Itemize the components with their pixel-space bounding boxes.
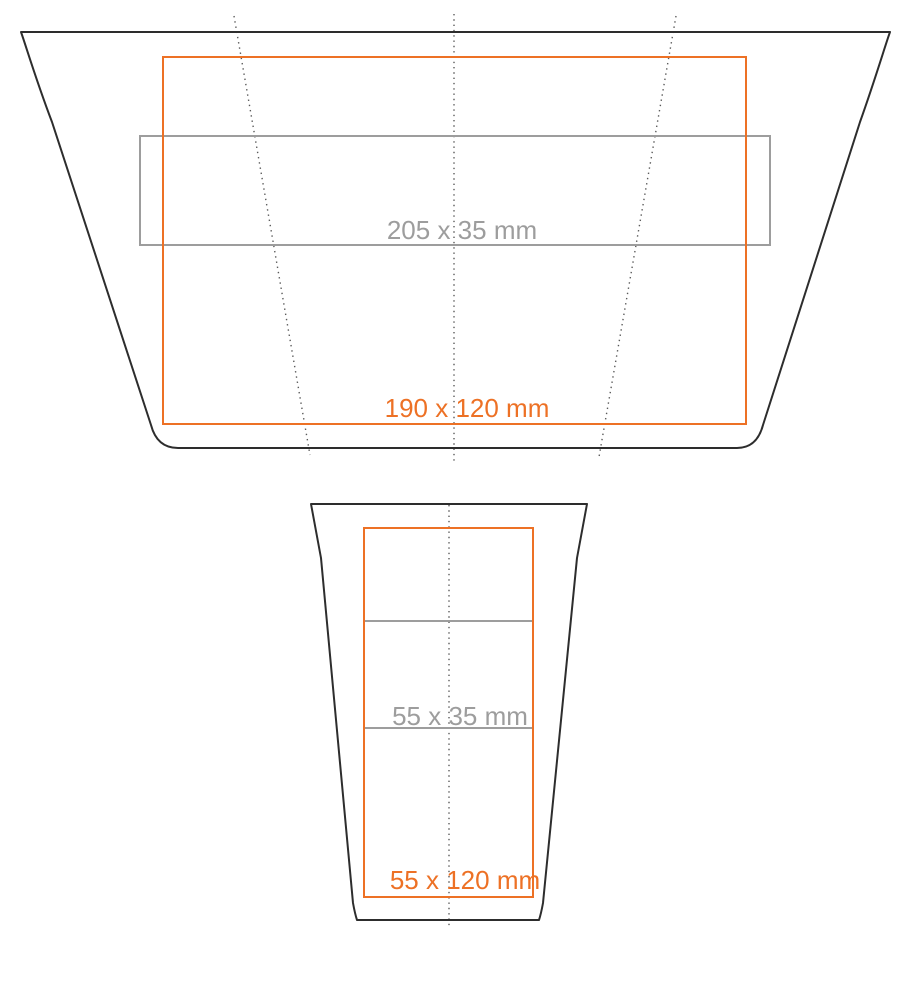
front-view: 55 x 35 mm 55 x 120 mm bbox=[311, 504, 587, 927]
diagram-canvas: 205 x 35 mm 190 x 120 mm 55 x 35 mm 55 x… bbox=[0, 0, 900, 982]
development-print-area-label: 190 x 120 mm bbox=[385, 393, 550, 423]
development-view: 205 x 35 mm 190 x 120 mm bbox=[21, 14, 890, 462]
cup-print-template-diagram: 205 x 35 mm 190 x 120 mm 55 x 35 mm 55 x… bbox=[0, 0, 900, 982]
development-left-fold-line bbox=[234, 16, 310, 455]
development-band-area-label: 205 x 35 mm bbox=[387, 215, 537, 245]
development-right-fold-line bbox=[599, 16, 676, 457]
front-print-area-label: 55 x 120 mm bbox=[390, 865, 540, 895]
front-band-area-label: 55 x 35 mm bbox=[392, 701, 528, 731]
